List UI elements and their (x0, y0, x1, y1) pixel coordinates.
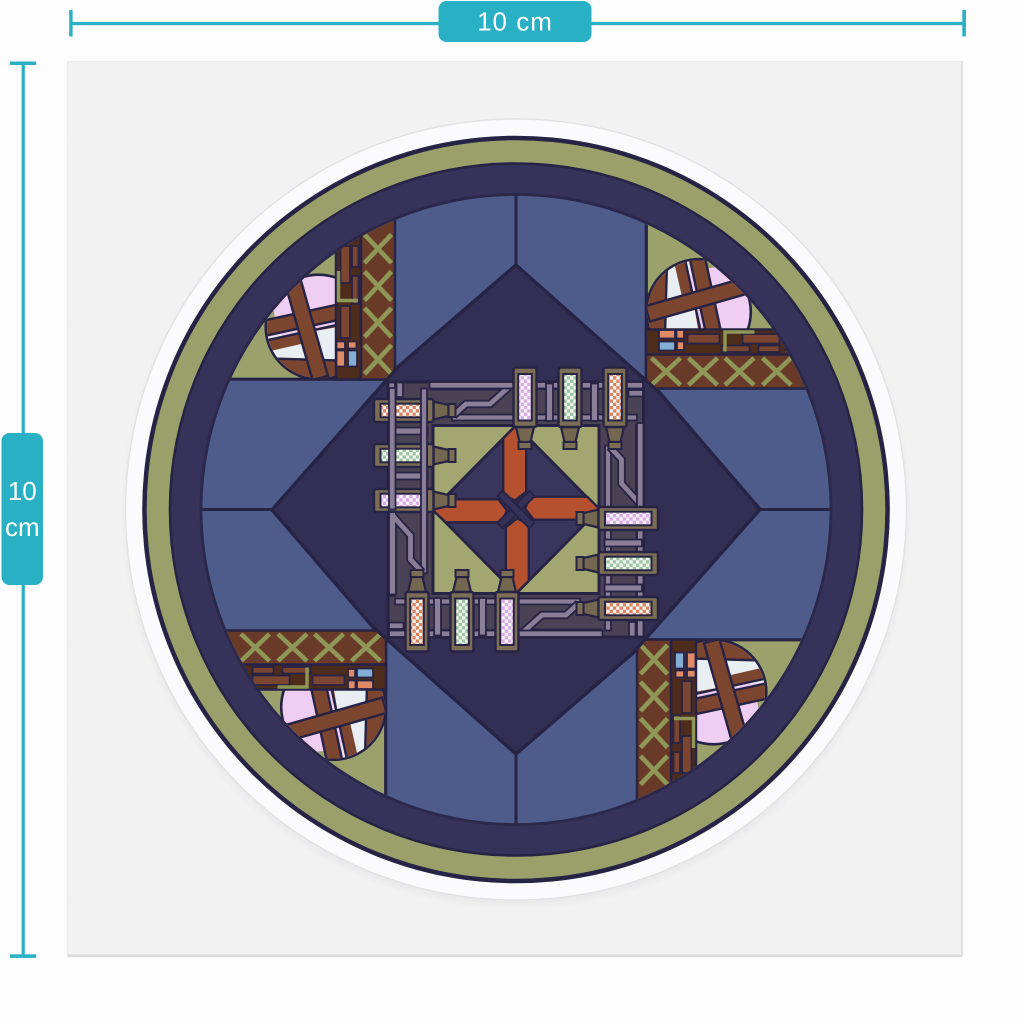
svg-text:10: 10 (8, 476, 37, 506)
svg-text:10 cm: 10 cm (477, 7, 553, 37)
svg-text:cm: cm (5, 512, 40, 542)
